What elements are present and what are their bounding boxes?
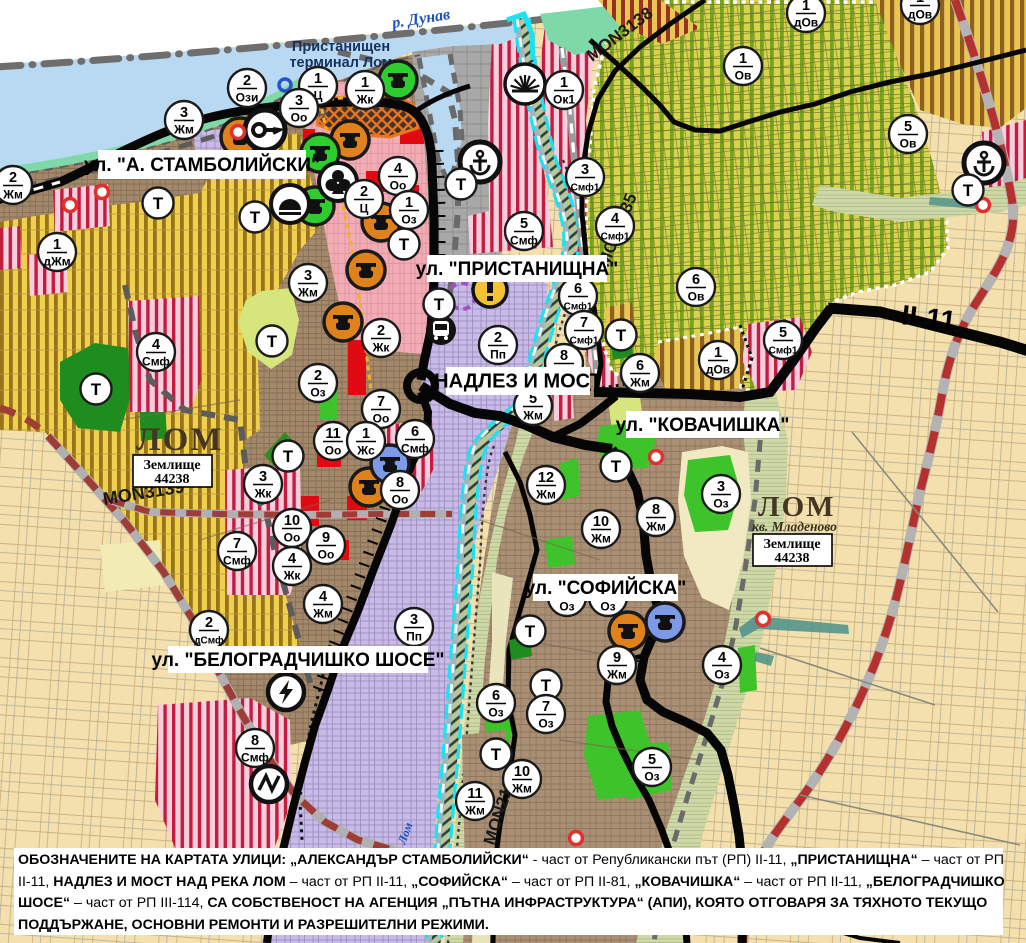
svg-text:1: 1 bbox=[739, 51, 747, 67]
svg-text:7: 7 bbox=[542, 699, 550, 715]
svg-text:Т: Т bbox=[434, 295, 445, 314]
svg-text:Ок1: Ок1 bbox=[553, 93, 575, 107]
svg-text:10: 10 bbox=[593, 514, 609, 530]
svg-text:Ц: Ц bbox=[360, 202, 369, 216]
svg-text:Смф1: Смф1 bbox=[601, 231, 630, 243]
svg-text:Жм: Жм bbox=[606, 668, 627, 682]
svg-text:Жс: Жс bbox=[356, 444, 375, 458]
svg-text:Жк: Жк bbox=[283, 569, 302, 583]
svg-text:Т: Т bbox=[283, 447, 294, 466]
svg-text:Ов: Ов bbox=[735, 69, 752, 83]
svg-text:Оз: Оз bbox=[488, 706, 503, 720]
svg-text:ул. "СОФИЙСКА": ул. "СОФИЙСКА" bbox=[525, 577, 687, 599]
svg-text:дОв: дОв bbox=[908, 8, 932, 22]
svg-text:Жм: Жм bbox=[173, 123, 194, 137]
svg-text:44238: 44238 bbox=[155, 472, 190, 487]
svg-text:Смф: Смф bbox=[401, 442, 429, 456]
svg-text:Т: Т bbox=[399, 235, 410, 254]
svg-text:Оз: Оз bbox=[600, 600, 615, 614]
svg-text:4: 4 bbox=[718, 650, 726, 666]
svg-text:Оз: Оз bbox=[713, 497, 728, 511]
svg-text:3: 3 bbox=[304, 268, 312, 284]
svg-text:Оо: Оо bbox=[325, 444, 342, 458]
svg-text:4: 4 bbox=[152, 337, 160, 353]
svg-text:Жм: Жм bbox=[645, 520, 666, 534]
svg-text:10: 10 bbox=[284, 513, 300, 529]
svg-text:дОв: дОв bbox=[706, 363, 730, 377]
svg-text:1: 1 bbox=[362, 426, 370, 442]
svg-text:Жк: Жк bbox=[254, 487, 273, 501]
svg-text:1: 1 bbox=[405, 195, 413, 211]
svg-text:6: 6 bbox=[692, 272, 700, 288]
svg-text:Т: Т bbox=[250, 208, 261, 227]
svg-text:9: 9 bbox=[322, 530, 330, 546]
svg-text:Жм: Жм bbox=[590, 532, 611, 546]
svg-text:4: 4 bbox=[611, 211, 619, 227]
svg-text:Т: Т bbox=[963, 181, 974, 200]
svg-text:6: 6 bbox=[636, 358, 644, 374]
svg-text:Оз: Оз bbox=[644, 770, 659, 784]
svg-text:1: 1 bbox=[361, 75, 369, 91]
svg-text:2: 2 bbox=[377, 323, 385, 339]
svg-text:ул. "ПРИСТАНИЩНА": ул. "ПРИСТАНИЩНА" bbox=[416, 259, 619, 280]
svg-text:1: 1 bbox=[53, 237, 61, 253]
svg-text:1: 1 bbox=[314, 71, 322, 87]
svg-text:Ов: Ов bbox=[688, 290, 705, 304]
svg-text:Оз: Оз bbox=[538, 717, 553, 731]
svg-text:Жм: Жм bbox=[2, 188, 23, 202]
svg-text:Т: Т bbox=[541, 676, 552, 695]
svg-text:Жм: Жм bbox=[464, 804, 485, 818]
svg-text:8: 8 bbox=[251, 733, 259, 749]
svg-text:10: 10 bbox=[514, 764, 530, 780]
svg-text:Пп: Пп bbox=[490, 348, 506, 362]
svg-text:1: 1 bbox=[714, 345, 722, 361]
svg-text:Оз: Оз bbox=[310, 386, 325, 400]
svg-text:Оз: Оз bbox=[401, 213, 416, 227]
svg-text:6: 6 bbox=[411, 424, 419, 440]
svg-text:Жм: Жм bbox=[522, 409, 543, 423]
svg-text:5: 5 bbox=[648, 752, 656, 768]
svg-text:Смф1: Смф1 bbox=[570, 335, 599, 347]
svg-text:2: 2 bbox=[9, 170, 17, 186]
svg-text:Т: Т bbox=[91, 380, 102, 399]
svg-text:Смф: Смф bbox=[223, 554, 251, 568]
svg-text:Пп: Пп bbox=[406, 630, 422, 644]
svg-text:Смф1: Смф1 bbox=[571, 182, 600, 194]
svg-text:Т: Т bbox=[491, 745, 502, 764]
svg-text:Оо: Оо bbox=[390, 179, 407, 193]
svg-text:8: 8 bbox=[560, 348, 568, 364]
svg-text:Оо: Оо bbox=[291, 111, 308, 125]
svg-text:Ози: Ози bbox=[236, 91, 259, 105]
svg-text:терминал Лом: терминал Лом bbox=[289, 55, 392, 71]
svg-text:Т: Т bbox=[153, 194, 164, 213]
svg-text:Жк: Жк bbox=[356, 93, 375, 107]
svg-text:Жм: Жм bbox=[511, 782, 532, 796]
svg-text:2: 2 bbox=[360, 184, 368, 200]
svg-text:11: 11 bbox=[467, 786, 482, 802]
svg-text:8: 8 bbox=[396, 475, 404, 491]
svg-text:3: 3 bbox=[295, 93, 303, 109]
svg-text:2: 2 bbox=[314, 368, 322, 384]
svg-text:6: 6 bbox=[574, 281, 582, 297]
svg-text:3: 3 bbox=[180, 105, 188, 121]
svg-text:Оз: Оз bbox=[559, 600, 574, 614]
svg-text:Ов: Ов bbox=[900, 137, 917, 151]
svg-text:5: 5 bbox=[779, 325, 787, 341]
svg-text:4: 4 bbox=[394, 161, 402, 177]
svg-text:Т: Т bbox=[616, 326, 627, 345]
svg-text:кв. Младеново: кв. Младеново bbox=[752, 519, 837, 534]
svg-text:Т: Т bbox=[456, 175, 467, 194]
svg-text:Жк: Жк bbox=[372, 341, 391, 355]
svg-text:НАДЛЕЗ И МОСТ: НАДЛЕЗ И МОСТ bbox=[434, 371, 602, 393]
svg-text:7: 7 bbox=[377, 394, 385, 410]
svg-text:3: 3 bbox=[410, 612, 418, 628]
svg-text:Землище: Землище bbox=[143, 458, 200, 473]
svg-text:7: 7 bbox=[580, 315, 588, 331]
svg-text:ЛОМ: ЛОМ bbox=[136, 422, 223, 458]
svg-text:Оо: Оо bbox=[284, 531, 301, 545]
svg-text:дОв: дОв bbox=[794, 16, 818, 30]
svg-text:11: 11 bbox=[325, 426, 340, 442]
svg-text:1: 1 bbox=[560, 75, 568, 91]
svg-text:Оз: Оз bbox=[714, 668, 729, 682]
svg-text:Т: Т bbox=[525, 622, 536, 641]
svg-text:4: 4 bbox=[288, 551, 296, 567]
svg-text:дЖм: дЖм bbox=[43, 255, 70, 269]
svg-text:ул. "БЕЛОГРАДЧИШКО ШОСЕ": ул. "БЕЛОГРАДЧИШКО ШОСЕ" bbox=[152, 650, 445, 671]
svg-text:6: 6 bbox=[492, 688, 500, 704]
svg-text:Оо: Оо bbox=[392, 493, 409, 507]
svg-text:Смф: Смф bbox=[510, 234, 538, 248]
svg-text:Пристанищен: Пристанищен bbox=[292, 39, 390, 55]
svg-text:44238: 44238 bbox=[775, 551, 810, 566]
svg-text:Жм: Жм bbox=[297, 286, 318, 300]
svg-text:II-11: II-11 bbox=[900, 299, 958, 336]
svg-text:3: 3 bbox=[259, 469, 267, 485]
svg-text:8: 8 bbox=[652, 502, 660, 518]
svg-text:дСмф: дСмф bbox=[194, 635, 224, 647]
svg-text:2: 2 bbox=[243, 73, 251, 89]
svg-text:7: 7 bbox=[233, 536, 241, 552]
svg-text:3: 3 bbox=[581, 162, 589, 178]
svg-text:Смф: Смф bbox=[241, 751, 269, 765]
svg-text:9: 9 bbox=[613, 650, 621, 666]
svg-text:12: 12 bbox=[538, 470, 554, 486]
svg-text:1: 1 bbox=[802, 0, 810, 14]
svg-text:2: 2 bbox=[494, 330, 502, 346]
svg-text:Жм: Жм bbox=[629, 376, 650, 390]
svg-text:Т: Т bbox=[611, 457, 622, 476]
svg-text:2: 2 bbox=[205, 615, 213, 631]
svg-text:Жм: Жм bbox=[535, 488, 556, 502]
svg-text:5: 5 bbox=[520, 216, 528, 232]
svg-text:Землище: Землище bbox=[763, 537, 820, 552]
svg-text:Смф1: Смф1 bbox=[769, 345, 798, 357]
svg-text:Оо: Оо bbox=[318, 548, 335, 562]
svg-text:Смф: Смф bbox=[142, 355, 170, 369]
svg-text:3: 3 bbox=[717, 479, 725, 495]
svg-text:Т: Т bbox=[267, 332, 278, 351]
svg-text:Жм: Жм bbox=[312, 607, 333, 621]
svg-text:5: 5 bbox=[904, 119, 912, 135]
svg-text:4: 4 bbox=[319, 589, 327, 605]
svg-text:ул. "КОВАЧИШКА": ул. "КОВАЧИШКА" bbox=[616, 415, 790, 436]
svg-text:ул. "А. СТАМБОЛИЙСКИ": ул. "А. СТАМБОЛИЙСКИ" bbox=[84, 154, 320, 176]
